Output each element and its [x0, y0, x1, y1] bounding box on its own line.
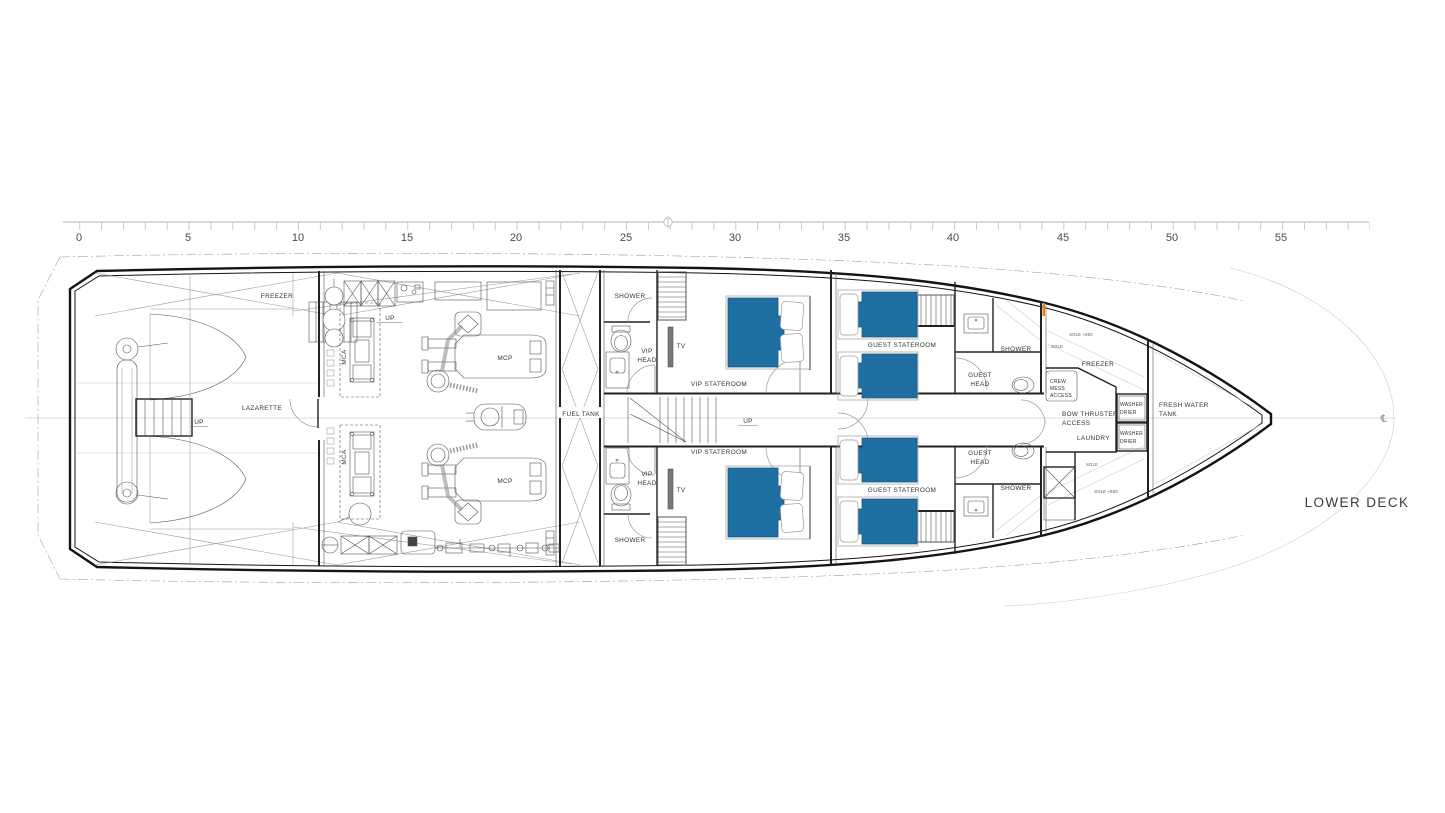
passerelle-mechanism — [116, 338, 168, 504]
bed-vip-upper — [726, 296, 810, 369]
label-bow-thruster-2: ACCESS — [1062, 420, 1090, 427]
label-vip-head-lower-1: VIP — [641, 471, 652, 478]
label-vip-head-lower-2: HEAD — [637, 480, 656, 487]
label-tv-lower: TV — [677, 487, 686, 494]
lower-deck-plan: 0 5 10 15 20 25 30 35 40 45 50 55 — [0, 0, 1445, 813]
ruler-label-30: 30 — [729, 232, 741, 244]
label-vip-head-upper-1: VIP — [641, 348, 652, 355]
label-shower-guest-upper: SHOWER — [1001, 346, 1032, 353]
label-vip-stateroom-lower: VIP STATEROOM — [691, 449, 747, 456]
label-tv-upper: TV — [677, 343, 686, 350]
label-up-lazarette: UP — [194, 419, 204, 426]
ruler-label-35: 35 — [838, 232, 850, 244]
main-engine-mcp-upper — [422, 312, 546, 392]
label-freezer-bow: FREEZER — [1082, 361, 1114, 368]
ruler-label-25: 25 — [620, 232, 632, 244]
label-fuel-tank: FUEL TANK — [562, 411, 600, 418]
label-sole-bottom: SOLE — [1086, 462, 1098, 467]
label-guest-head-lower-2: HEAD — [970, 459, 989, 466]
label-freezer-stern: FREEZER — [261, 293, 293, 300]
bed-guest-lower-2 — [838, 497, 918, 546]
bed-guest-upper-1 — [838, 290, 918, 339]
ruler-label-45: 45 — [1057, 232, 1069, 244]
ruler-label-10: 10 — [292, 232, 304, 244]
label-washer-drier-2a: WASHER — [1120, 431, 1143, 437]
label-vip-head-upper-2: HEAD — [637, 357, 656, 364]
label-mcp-upper: MCP — [497, 355, 512, 362]
centerline-generator — [466, 404, 526, 430]
label-washer-drier-1b: DRIER — [1120, 410, 1137, 416]
ruler-label-40: 40 — [947, 232, 959, 244]
scale-ruler: 0 5 10 15 20 25 30 35 40 45 50 55 — [63, 216, 1370, 245]
label-sole-top: SOLE — [1051, 344, 1063, 349]
generator-mca-lower — [340, 425, 380, 519]
ruler-label-0: 0 — [76, 232, 82, 244]
label-up-corridor: UP — [743, 418, 753, 425]
label-crew-mess-1: CREW — [1050, 379, 1066, 385]
ruler-label-50: 50 — [1166, 232, 1178, 244]
label-guest-head-lower-1: GUEST — [968, 450, 992, 457]
label-guest-stateroom-upper: GUEST STATEROOM — [868, 342, 936, 349]
label-crew-mess-3: ACCESS — [1050, 393, 1072, 399]
lazarette-stairs — [136, 399, 192, 436]
centerline-symbol: ℄ — [1380, 414, 1388, 425]
label-shower-vip-upper: SHOWER — [615, 293, 646, 300]
label-guest-head-upper-1: GUEST — [968, 372, 992, 379]
label-shower-vip-lower: SHOWER — [615, 537, 646, 544]
label-sole-800-top: SOLE +800 — [1069, 332, 1093, 337]
label-laundry: LAUNDRY — [1077, 435, 1110, 442]
ruler-label-15: 15 — [401, 232, 413, 244]
label-shower-guest-lower: SHOWER — [1001, 485, 1032, 492]
ruler-label-55: 55 — [1275, 232, 1287, 244]
label-mca-upper: MCA — [341, 349, 348, 365]
bed-vip-lower — [726, 466, 810, 539]
label-mca-lower: MCA — [341, 449, 348, 465]
ruler-label-5: 5 — [185, 232, 191, 244]
bed-guest-lower-1 — [838, 436, 918, 484]
label-washer-drier-1a: WASHER — [1120, 402, 1143, 408]
label-fresh-water-2: TANK — [1159, 411, 1177, 418]
label-sole-800-bottom: SOLE +800 — [1094, 489, 1118, 494]
label-vip-stateroom-upper: VIP STATEROOM — [691, 381, 747, 388]
label-bow-thruster-1: BOW THRUSTER — [1062, 411, 1118, 418]
label-guest-stateroom-lower: GUEST STATEROOM — [868, 487, 936, 494]
label-up-engine: UP — [385, 315, 395, 322]
ruler-label-20: 20 — [510, 232, 522, 244]
fuel-tank — [559, 270, 604, 566]
bed-guest-upper-2 — [838, 352, 918, 400]
label-mcp-lower: MCP — [497, 478, 512, 485]
label-guest-head-upper-2: HEAD — [970, 381, 989, 388]
label-crew-mess-2: MESS — [1050, 386, 1065, 392]
label-lazarette: LAZARETTE — [242, 405, 282, 412]
deck-plan-drawing: 0 5 10 15 20 25 30 35 40 45 50 55 — [0, 0, 1445, 813]
label-fresh-water-1: FRESH WATER — [1159, 402, 1209, 409]
main-engine-mcp-lower — [422, 444, 546, 524]
accent-mark — [1043, 303, 1046, 316]
deck-title: LOWER DECK — [1305, 495, 1410, 510]
label-washer-drier-2b: DRIER — [1120, 439, 1137, 445]
